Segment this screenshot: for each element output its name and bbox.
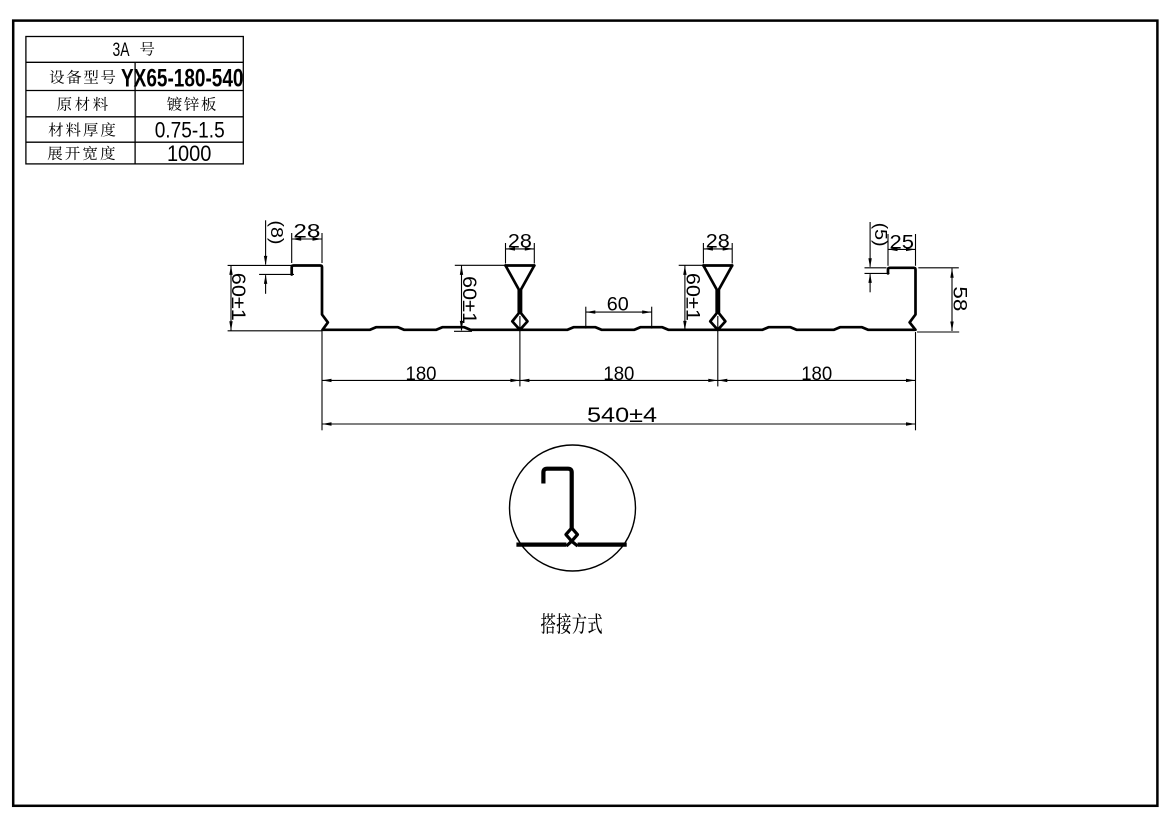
svg-text:180: 180 [801, 363, 832, 385]
svg-text:180: 180 [603, 363, 634, 385]
svg-text:58: 58 [949, 286, 971, 311]
svg-text:60±1: 60±1 [227, 273, 248, 321]
svg-text:1000: 1000 [167, 141, 212, 166]
svg-text:180: 180 [406, 363, 437, 385]
svg-text:28: 28 [293, 221, 320, 243]
svg-text:(5): (5) [871, 223, 891, 247]
svg-text:YX65-180-540: YX65-180-540 [121, 65, 244, 93]
svg-text:0.75-1.5: 0.75-1.5 [155, 117, 225, 142]
svg-text:25: 25 [890, 232, 915, 254]
svg-text:28: 28 [706, 231, 730, 253]
svg-text:60±1: 60±1 [681, 273, 702, 321]
svg-text:(8): (8) [267, 220, 287, 244]
svg-text:540±4: 540±4 [587, 404, 657, 427]
svg-text:60±1: 60±1 [458, 276, 479, 324]
svg-text:28: 28 [508, 231, 532, 253]
svg-text:3A: 3A [113, 39, 130, 61]
svg-text:60: 60 [607, 293, 629, 315]
